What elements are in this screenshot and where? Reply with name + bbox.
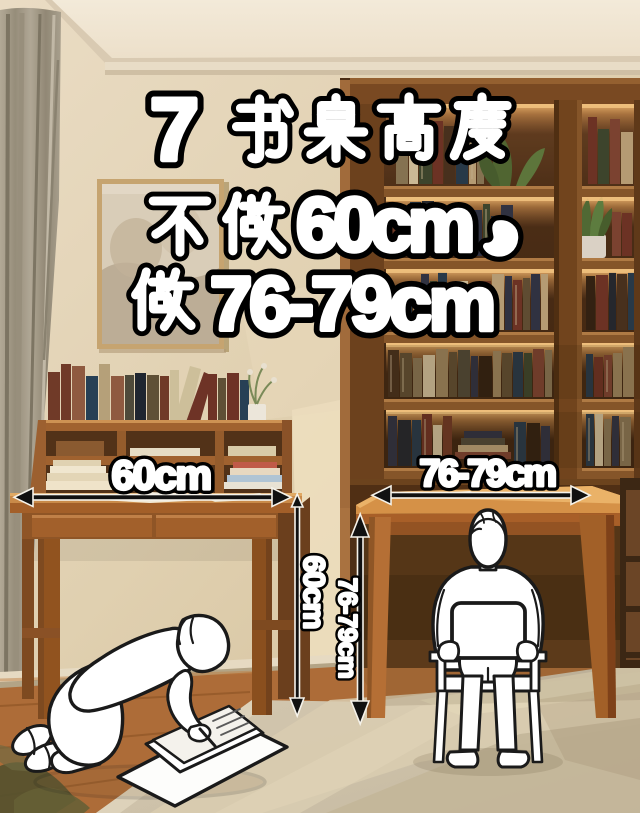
- svg-text:60cm: 60cm: [296, 183, 471, 268]
- svg-text:76-79cm: 76-79cm: [419, 453, 555, 495]
- svg-text:60cm: 60cm: [112, 452, 211, 498]
- svg-text:76-79cm: 76-79cm: [210, 262, 493, 347]
- svg-text:7: 7: [150, 80, 199, 179]
- svg-text:76-79cm: 76-79cm: [333, 578, 363, 679]
- svg-text:60cm: 60cm: [297, 556, 330, 629]
